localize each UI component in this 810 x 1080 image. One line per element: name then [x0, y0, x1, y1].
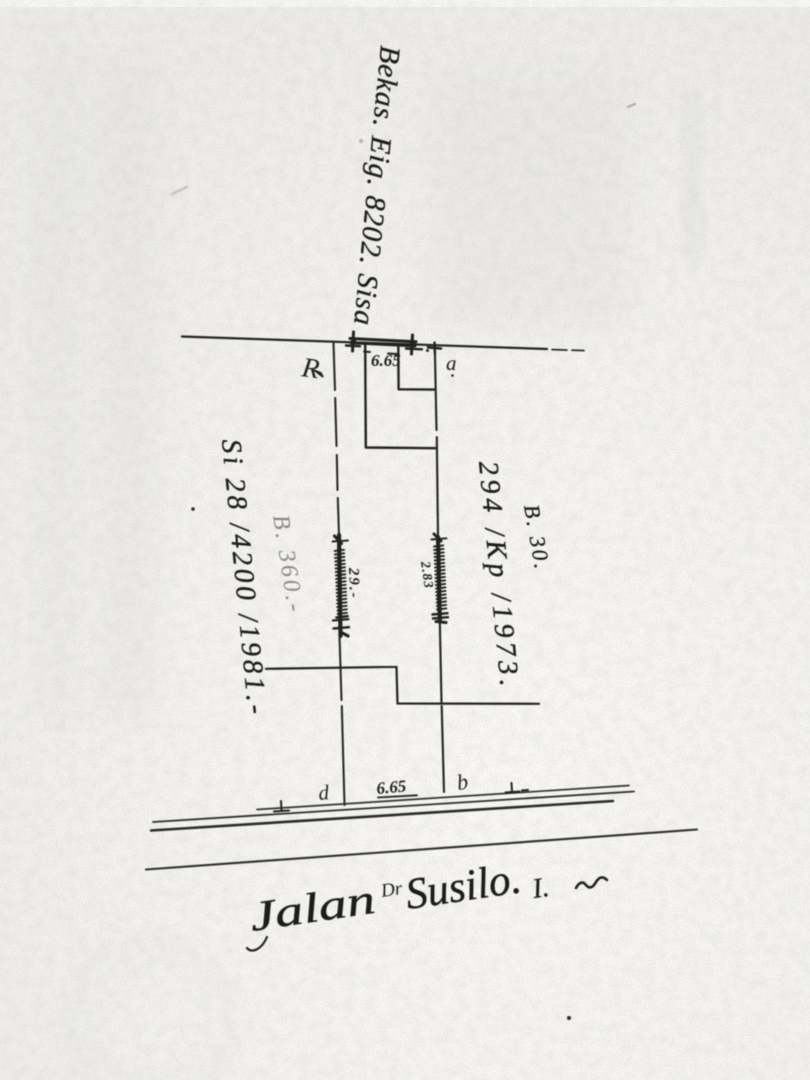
svg-text:29.-: 29.- [345, 567, 362, 600]
svg-text:a: a [446, 351, 457, 375]
svg-text:Dr: Dr [379, 878, 405, 902]
svg-text:6.65: 6.65 [376, 776, 408, 798]
svg-text:6.65: 6.65 [371, 351, 401, 370]
